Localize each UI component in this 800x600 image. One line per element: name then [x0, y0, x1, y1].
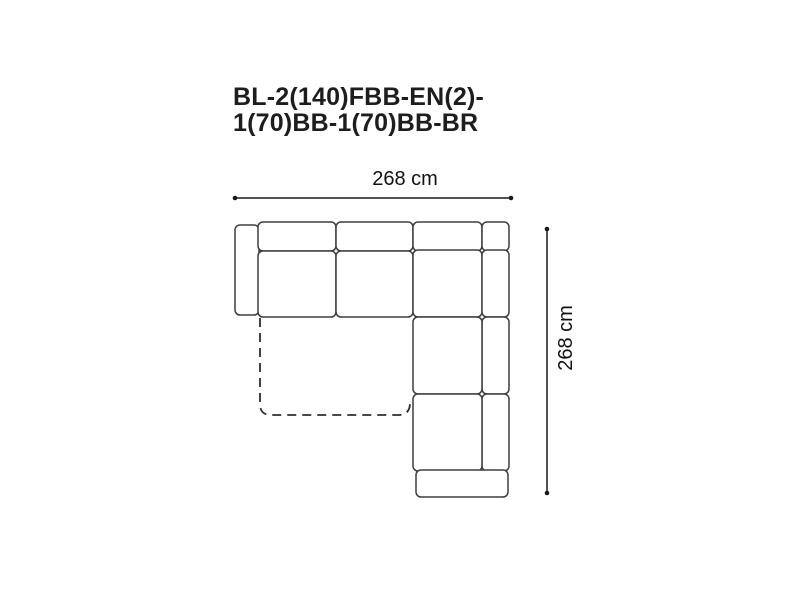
height-dimension: 268 cm — [545, 227, 577, 496]
width-dimension-left-dot — [233, 196, 238, 201]
height-dimension-label: 268 cm — [555, 305, 577, 371]
sofa-top-view-diagram: 268 cm 268 cm — [0, 0, 800, 600]
right-back-strip-1 — [482, 250, 509, 317]
bottom-armrest — [416, 470, 508, 497]
right-seat-cushion-1 — [413, 317, 482, 394]
corner-top-right-piece — [482, 222, 509, 251]
right-back-strip-3 — [482, 394, 509, 471]
left-armrest — [235, 225, 259, 315]
back-cushion-1 — [258, 222, 336, 251]
corner-back-cushion — [413, 222, 482, 251]
width-dimension-right-dot — [509, 196, 514, 201]
height-dimension-bottom-dot — [545, 491, 550, 496]
right-back-strip-2 — [482, 317, 509, 394]
seat-cushion-2 — [336, 251, 413, 317]
width-dimension-label: 268 cm — [372, 168, 438, 190]
right-seat-cushion-2 — [413, 394, 482, 471]
sofa-modules — [235, 222, 509, 497]
height-dimension-top-dot — [545, 227, 550, 232]
back-cushion-2 — [336, 222, 413, 251]
corner-seat — [413, 250, 482, 317]
fold-out-bed-outline — [260, 318, 410, 415]
seat-cushion-1 — [258, 251, 336, 317]
product-dimension-diagram-page: BL-2(140)FBB-EN(2)- 1(70)BB-1(70)BB-BR 2… — [0, 0, 800, 600]
width-dimension: 268 cm — [233, 168, 514, 200]
